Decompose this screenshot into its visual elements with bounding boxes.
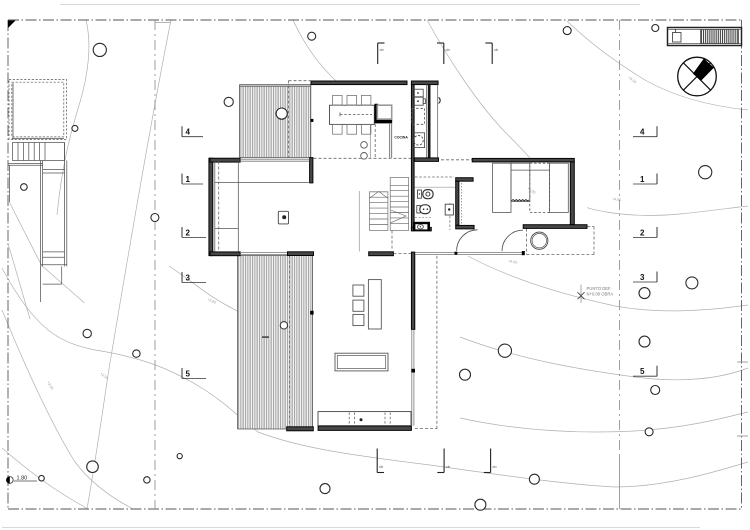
svg-text:2: 2 bbox=[186, 229, 191, 238]
svg-text:5: 5 bbox=[640, 367, 645, 376]
svg-text:5: 5 bbox=[186, 370, 191, 379]
svg-text:1: 1 bbox=[640, 175, 645, 184]
svg-text:3: 3 bbox=[186, 274, 191, 283]
svg-text:PUNTO DEF.: PUNTO DEF. bbox=[587, 286, 612, 291]
svg-text:3: 3 bbox=[640, 273, 645, 282]
svg-text:4: 4 bbox=[640, 128, 645, 137]
svg-text:1.80: 1.80 bbox=[17, 476, 28, 482]
svg-text:N+0.00 OBRA: N+0.00 OBRA bbox=[587, 292, 614, 297]
svg-text:4: 4 bbox=[186, 128, 191, 137]
svg-text:COCINA: COCINA bbox=[394, 136, 408, 140]
svg-text:1: 1 bbox=[186, 175, 191, 184]
svg-text:2: 2 bbox=[640, 229, 645, 238]
